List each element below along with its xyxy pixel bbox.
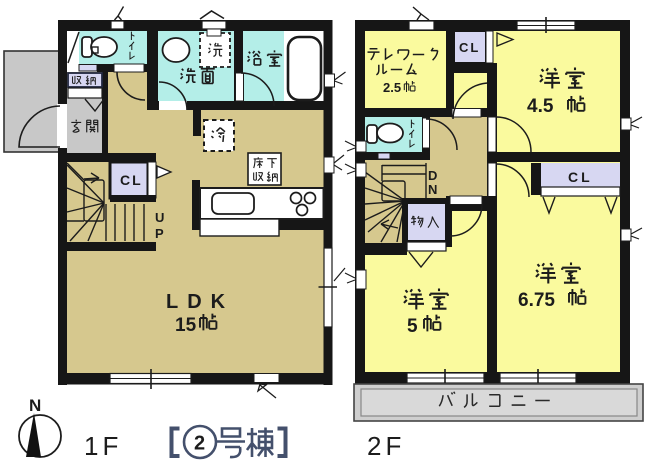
svg-text:4.5: 4.5 (527, 96, 554, 117)
svg-text:2: 2 (194, 433, 205, 455)
svg-text:N: N (428, 182, 437, 197)
svg-text:D: D (428, 168, 437, 183)
svg-text:CL: CL (459, 40, 480, 55)
svg-text:U: U (155, 210, 164, 225)
svg-text:N: N (29, 396, 41, 415)
svg-text:2F: 2F (367, 431, 405, 461)
svg-text:LDK: LDK (166, 291, 234, 313)
svg-text:P: P (155, 226, 164, 241)
svg-text:CL: CL (120, 172, 143, 188)
svg-text:2.5: 2.5 (383, 80, 401, 95)
svg-text:CL: CL (568, 169, 593, 185)
svg-text:5: 5 (407, 316, 418, 337)
svg-text:1F: 1F (84, 431, 122, 461)
svg-text:6.75: 6.75 (518, 290, 555, 311)
svg-text:15: 15 (175, 315, 197, 336)
